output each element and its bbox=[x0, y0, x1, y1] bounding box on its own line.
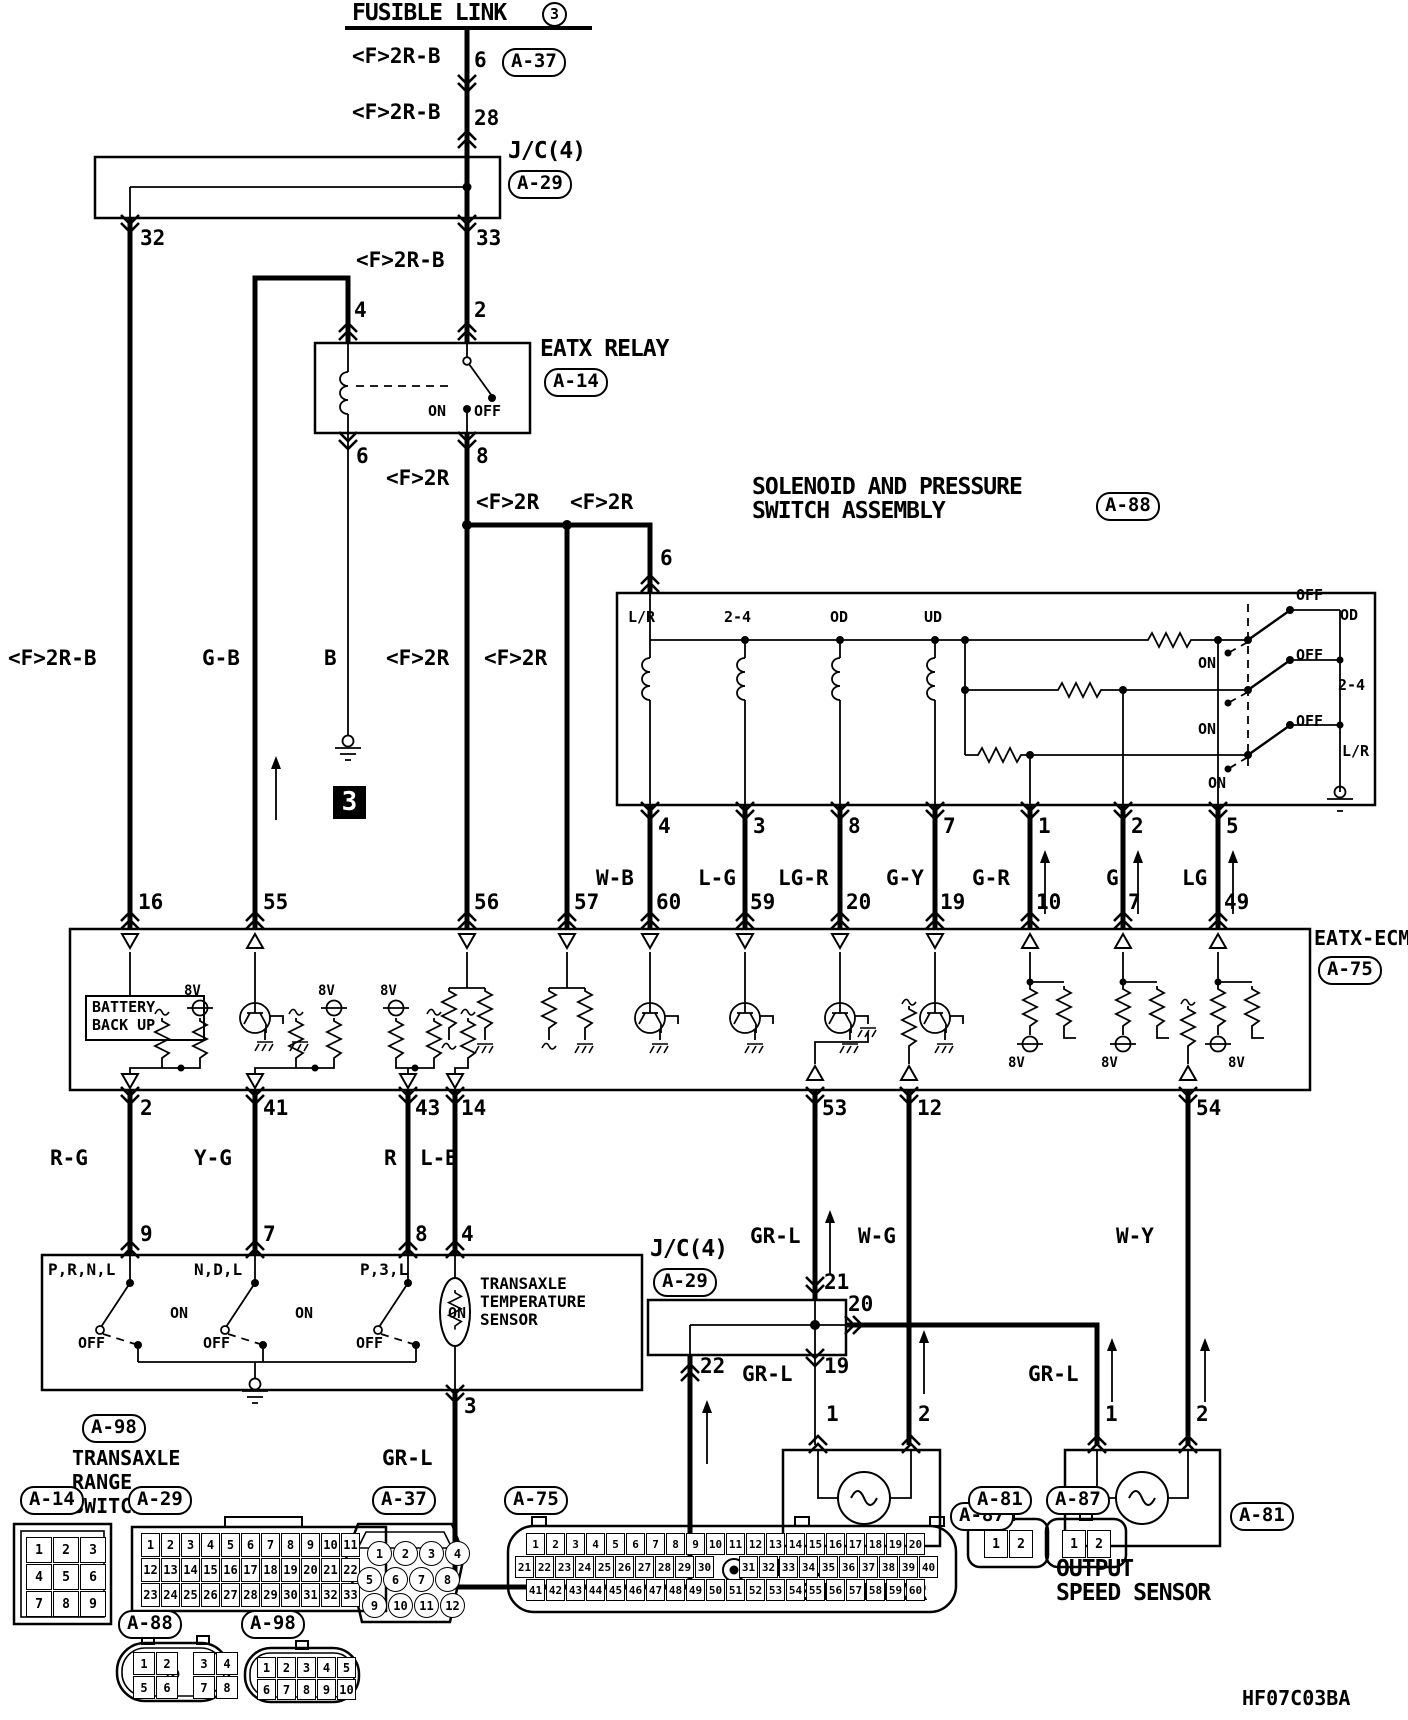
pin-cell: 44 bbox=[586, 1579, 605, 1601]
pin-label-10: 10 bbox=[1036, 892, 1061, 913]
pin-label-2: 2 bbox=[918, 1404, 931, 1425]
transistor-icon bbox=[240, 1003, 270, 1033]
pin-cell: 6 bbox=[383, 1567, 408, 1592]
pin-cell: 3 bbox=[566, 1533, 585, 1555]
connector-badge-a29: A-29 bbox=[653, 1268, 717, 1297]
fusible-link-number: 3 bbox=[542, 2, 567, 27]
8v-node-icon bbox=[1205, 1037, 1231, 1052]
pin-cell: 21 bbox=[321, 1558, 340, 1582]
temp-sensor-2: TEMPERATURE bbox=[480, 1294, 586, 1310]
circuit-ref-3: 3 bbox=[333, 786, 366, 819]
pin-label-55: 55 bbox=[263, 892, 288, 913]
pin-cell: 8 bbox=[435, 1567, 460, 1592]
temp-sensor-3: SENSOR bbox=[480, 1312, 538, 1328]
connector-badge-a14: A-14 bbox=[20, 1486, 84, 1515]
pin-cell: 3 bbox=[419, 1541, 444, 1566]
pin-cell: 9 bbox=[686, 1533, 705, 1555]
pin-cell: 2 bbox=[1087, 1530, 1111, 1558]
pin-cell: 2 bbox=[156, 1652, 178, 1675]
pin-cell: 31 bbox=[739, 1556, 758, 1578]
pin-cell: 11 bbox=[414, 1593, 439, 1618]
pin-cell: 57 bbox=[846, 1579, 865, 1601]
pin-cell: 9 bbox=[301, 1533, 320, 1557]
signal-wires bbox=[101, 187, 1340, 1498]
pin-cell: 53 bbox=[766, 1579, 785, 1601]
connector-badge-a14: A-14 bbox=[544, 368, 608, 397]
pin-cell: 21 bbox=[515, 1556, 534, 1578]
pin-label-28: 28 bbox=[474, 108, 499, 129]
wire-label-gr: G-R bbox=[972, 868, 1010, 889]
pin-cell: 46 bbox=[626, 1579, 645, 1601]
range-switch-ndl: N,D,L bbox=[194, 1262, 242, 1278]
relay-off-label: OFF bbox=[474, 404, 501, 419]
switch-on-label: ON bbox=[1208, 776, 1226, 791]
pin-label-21: 21 bbox=[824, 1272, 849, 1293]
pin-cell: 18 bbox=[261, 1558, 280, 1582]
wire-label-grl: GR-L bbox=[750, 1226, 801, 1247]
pin-cell: 2 bbox=[393, 1541, 418, 1566]
wire-label-f2r: <F>2R bbox=[476, 492, 539, 513]
resistor-icon bbox=[975, 748, 1027, 762]
pin-label-3: 3 bbox=[464, 1396, 477, 1417]
pin-label-43: 43 bbox=[415, 1098, 440, 1119]
pin-cell: 18 bbox=[866, 1533, 885, 1555]
pin-cell: 20 bbox=[301, 1558, 320, 1582]
pin-cell: 8 bbox=[281, 1533, 300, 1557]
pin-cell: 28 bbox=[241, 1583, 260, 1607]
pin-label-4: 4 bbox=[658, 816, 671, 837]
pin-cell: 32 bbox=[321, 1583, 340, 1607]
pin-row: 12 bbox=[1062, 1530, 1111, 1558]
a14-pinout-grid: 123456789 bbox=[26, 1536, 106, 1617]
pin-cell: 32 bbox=[759, 1556, 778, 1578]
pin-cell: 15 bbox=[806, 1533, 825, 1555]
pin-cell: 38 bbox=[879, 1556, 898, 1578]
pin-cell: 3 bbox=[297, 1657, 316, 1678]
pin-cell: 58 bbox=[866, 1579, 885, 1601]
pin-label-2: 2 bbox=[1196, 1404, 1209, 1425]
pin-label-12: 12 bbox=[917, 1098, 942, 1119]
connector-badge-a75: A-75 bbox=[1318, 956, 1382, 985]
wire-label-rg: R-G bbox=[50, 1148, 88, 1169]
pin-cell: 7 bbox=[646, 1533, 665, 1555]
wire-label-lb: L-B bbox=[420, 1148, 458, 1169]
solenoid-24-label: 2-4 bbox=[724, 610, 751, 625]
pin-cell: 56 bbox=[826, 1579, 845, 1601]
8v-node-icon bbox=[1110, 1037, 1136, 1052]
8v-node-icon bbox=[187, 1001, 213, 1016]
pin-cell: 24 bbox=[575, 1556, 594, 1578]
8v-node-icon bbox=[1017, 1037, 1043, 1052]
pin-label-7: 7 bbox=[1128, 892, 1141, 913]
pin-label-2: 2 bbox=[1131, 816, 1144, 837]
pin-label-1: 1 bbox=[1105, 1404, 1118, 1425]
pin-cell: 4 bbox=[586, 1533, 605, 1555]
pin-cell: 12 bbox=[141, 1558, 160, 1582]
pin-cell: 47 bbox=[646, 1579, 665, 1601]
pin-cell: 17 bbox=[241, 1558, 260, 1582]
pin-label-1: 1 bbox=[1038, 816, 1051, 837]
pin-cell: 24 bbox=[161, 1583, 180, 1607]
wire-label-f2r: <F>2R bbox=[386, 648, 449, 669]
pin-cell: 9 bbox=[317, 1679, 336, 1700]
pin-cell: 10 bbox=[388, 1593, 413, 1618]
pin-cell: 6 bbox=[80, 1564, 106, 1590]
ac-generator-icon bbox=[1116, 1472, 1168, 1524]
a87-pinout-grid: 12 bbox=[1062, 1529, 1111, 1558]
wire-label-grl: GR-L bbox=[1028, 1364, 1079, 1385]
wire-label-r: R bbox=[384, 1148, 397, 1169]
pin-cell: 54 bbox=[786, 1579, 805, 1601]
switch-off-label: OFF bbox=[78, 1336, 105, 1351]
transistor-icon bbox=[825, 1003, 855, 1033]
junction-title: J/C(4) bbox=[508, 140, 585, 163]
connector-badge-a29: A-29 bbox=[128, 1486, 192, 1515]
pin-label-19: 19 bbox=[824, 1356, 849, 1377]
pin-cell: 1 bbox=[1062, 1530, 1086, 1558]
connector-badge-a37: A-37 bbox=[372, 1486, 436, 1515]
page-title: FUSIBLE LINK bbox=[352, 2, 506, 25]
pin-cell: 48 bbox=[666, 1579, 685, 1601]
wire-label-lg: LG bbox=[1182, 868, 1207, 889]
8v-node-icon bbox=[383, 1001, 409, 1016]
pin-cell: 8 bbox=[53, 1591, 79, 1617]
pin-cell: 42 bbox=[546, 1579, 565, 1601]
wire-label-gy: G-Y bbox=[886, 868, 924, 889]
pin-cell: 49 bbox=[686, 1579, 705, 1601]
junction-dots bbox=[126, 183, 1344, 1350]
pin-cell: 1 bbox=[984, 1530, 1008, 1558]
pin-cell: 6 bbox=[156, 1676, 178, 1699]
pin-cell: 8 bbox=[666, 1533, 685, 1555]
pin-label-59: 59 bbox=[750, 892, 775, 913]
pin-row: 456 bbox=[26, 1564, 106, 1590]
pin-label-4: 4 bbox=[461, 1224, 474, 1245]
pin-row: 1234567891011121314151617181920 bbox=[526, 1533, 938, 1555]
pin-label-8: 8 bbox=[415, 1224, 428, 1245]
a98-pinout-grid: 12345678910 bbox=[257, 1656, 356, 1700]
pin-cell: 8 bbox=[216, 1676, 238, 1699]
8v-label: 8V bbox=[1228, 1056, 1245, 1070]
pin-label-54: 54 bbox=[1196, 1098, 1221, 1119]
pin-cell: 1 bbox=[526, 1533, 545, 1555]
pin-label-57: 57 bbox=[574, 892, 599, 913]
range-switch-title-1: TRANSAXLE bbox=[72, 1448, 180, 1468]
pin-cell: 7 bbox=[26, 1591, 52, 1617]
pin-cell: 14 bbox=[786, 1533, 805, 1555]
pin-row: 123 bbox=[26, 1537, 106, 1563]
pin-row: 678910 bbox=[257, 1679, 356, 1700]
pin-cell: 2 bbox=[277, 1657, 296, 1678]
pin-row: 4142434445464748495051525354555657585960 bbox=[526, 1579, 938, 1601]
pin-cell: 22 bbox=[535, 1556, 554, 1578]
range-switch-prnl: P,R,N,L bbox=[48, 1262, 115, 1278]
pin-row: 5678 bbox=[133, 1676, 238, 1699]
solenoid-title-1: SOLENOID AND PRESSURE bbox=[752, 476, 1022, 499]
pin-cell: 19 bbox=[281, 1558, 300, 1582]
switch-off-label: OFF bbox=[1296, 714, 1323, 729]
8v-label: 8V bbox=[318, 984, 335, 998]
pin-label-5: 5 bbox=[1226, 816, 1239, 837]
pin-label-9: 9 bbox=[140, 1224, 153, 1245]
pin-cell: 17 bbox=[846, 1533, 865, 1555]
pin-row: 5678 bbox=[357, 1567, 470, 1592]
wire-label-f2rb: <F>2R-B bbox=[352, 46, 441, 67]
ecm-pin-triangles bbox=[122, 934, 1226, 1088]
pin-cell: 11 bbox=[726, 1533, 745, 1555]
ecm-title: EATX-ECM bbox=[1314, 928, 1408, 948]
pin-cell: 36 bbox=[839, 1556, 858, 1578]
wire-label-f2r: <F>2R bbox=[570, 492, 633, 513]
pin-row: 1213141516171819202122 bbox=[141, 1558, 360, 1582]
wire-label-wg: W-G bbox=[858, 1226, 896, 1247]
pin-cell: 7 bbox=[261, 1533, 280, 1557]
pin-cell: 59 bbox=[886, 1579, 905, 1601]
connector-badge-a98: A-98 bbox=[241, 1610, 305, 1639]
wire-label-b: B bbox=[324, 648, 337, 669]
pin-cell: 5 bbox=[337, 1657, 356, 1678]
wire-label-f2r: <F>2R bbox=[386, 468, 449, 489]
transistor-icon bbox=[920, 1003, 950, 1033]
solenoid-ud-label: UD bbox=[924, 610, 942, 625]
pin-cell: 34 bbox=[799, 1556, 818, 1578]
pin-label-41: 41 bbox=[263, 1098, 288, 1119]
power-wires bbox=[130, 26, 1218, 1587]
pin-label-6: 6 bbox=[356, 446, 369, 467]
connector-badge-a81: A-81 bbox=[1230, 1502, 1294, 1531]
pin-cell: 52 bbox=[746, 1579, 765, 1601]
range-switch-title-2: RANGE bbox=[72, 1472, 132, 1492]
wire-label-g: G bbox=[1106, 868, 1119, 889]
pin-cell: 31 bbox=[301, 1583, 320, 1607]
pin-cell: 13 bbox=[766, 1533, 785, 1555]
battery-backup-1: BATTERY bbox=[92, 1000, 155, 1015]
wiring-diagram-page: FUSIBLE LINK 3 <F>2R-B 6 A-37 <F>2R-B 28… bbox=[0, 0, 1408, 1720]
pressure-switch-lr: L/R bbox=[1342, 744, 1369, 759]
pin-cell: 6 bbox=[626, 1533, 645, 1555]
solenoid-od-label: OD bbox=[830, 610, 848, 625]
wire-label-f2rb: <F>2R-B bbox=[8, 648, 97, 669]
pin-cell: 1 bbox=[26, 1537, 52, 1563]
pin-cell: 26 bbox=[201, 1583, 220, 1607]
pin-cell: 13 bbox=[161, 1558, 180, 1582]
a37-pinout-grid: 123456789101112 bbox=[357, 1540, 470, 1618]
connector-badge-a29: A-29 bbox=[508, 170, 572, 199]
pin-cell: 43 bbox=[566, 1579, 585, 1601]
pin-cell: 10 bbox=[321, 1533, 340, 1557]
pin-row: 1234 bbox=[367, 1541, 470, 1566]
pin-label-32: 32 bbox=[140, 228, 165, 249]
8v-label: 8V bbox=[1008, 1056, 1025, 1070]
pin-label-8: 8 bbox=[848, 816, 861, 837]
pin-cell: 4 bbox=[216, 1652, 238, 1675]
pin-label-1: 1 bbox=[826, 1404, 839, 1425]
connector-badge-a88: A-88 bbox=[1096, 492, 1160, 521]
switch-on-label: ON bbox=[1198, 722, 1216, 737]
pin-cell: 23 bbox=[141, 1583, 160, 1607]
wire-label-lgr: LG-R bbox=[778, 868, 829, 889]
pin-label-4: 4 bbox=[354, 300, 367, 321]
pin-cell: 9 bbox=[80, 1591, 106, 1617]
pin-label-3: 3 bbox=[753, 816, 766, 837]
pin-cell: 4 bbox=[317, 1657, 336, 1678]
pin-cell: 16 bbox=[221, 1558, 240, 1582]
pin-label-6: 6 bbox=[660, 548, 673, 569]
pin-cell: 26 bbox=[615, 1556, 634, 1578]
junction-title-2: J/C(4) bbox=[650, 1238, 727, 1261]
pin-cell: 6 bbox=[257, 1679, 276, 1700]
pin-label-7: 7 bbox=[943, 816, 956, 837]
switch-off-label: OFF bbox=[356, 1336, 383, 1351]
pin-cell: 30 bbox=[281, 1583, 300, 1607]
pin-cell: 5 bbox=[221, 1533, 240, 1557]
battery-backup-2: BACK UP bbox=[92, 1018, 155, 1033]
switch-on-label: ON bbox=[1198, 656, 1216, 671]
diagram-code: HF07C03BA bbox=[1242, 1688, 1350, 1708]
pin-cell: 27 bbox=[635, 1556, 654, 1578]
pin-row: 2324252627282930313233 bbox=[141, 1583, 360, 1607]
a29-pinout-grid: 1234567891011121314151617181920212223242… bbox=[141, 1532, 360, 1607]
pin-label-19: 19 bbox=[940, 892, 965, 913]
pin-cell: 33 bbox=[779, 1556, 798, 1578]
pin-cell: 27 bbox=[221, 1583, 240, 1607]
pin-cell: 37 bbox=[859, 1556, 878, 1578]
pin-label-20: 20 bbox=[848, 1294, 873, 1315]
pressure-switch-24: 2-4 bbox=[1338, 678, 1365, 693]
pin-cell: 1 bbox=[257, 1657, 276, 1678]
pin-cell: 19 bbox=[886, 1533, 905, 1555]
a75-pinout-grid: 1234567891011121314151617181920212223242… bbox=[526, 1532, 938, 1601]
pin-label-8: 8 bbox=[476, 446, 489, 467]
pin-cell: 8 bbox=[297, 1679, 316, 1700]
solenoid-coils bbox=[642, 633, 1197, 762]
pin-cell: 4 bbox=[26, 1564, 52, 1590]
range-switch-p3l: P,3,L bbox=[360, 1262, 408, 1278]
connector-badge-a87: A-87 bbox=[1046, 1486, 1110, 1515]
mechanical-links bbox=[103, 386, 1248, 1344]
pin-cell: 5 bbox=[357, 1567, 382, 1592]
temp-sensor-1: TRANSAXLE bbox=[480, 1276, 567, 1292]
pin-cell: 14 bbox=[181, 1558, 200, 1582]
wire-label-f2rb: <F>2R-B bbox=[356, 250, 445, 271]
pin-cell: 9 bbox=[362, 1593, 387, 1618]
connector-badge-a75: A-75 bbox=[504, 1486, 568, 1515]
8v-label: 8V bbox=[380, 984, 397, 998]
pin-cell: 5 bbox=[133, 1676, 155, 1699]
resistor-icon bbox=[1055, 683, 1107, 697]
pin-cell: 35 bbox=[819, 1556, 838, 1578]
pin-cell: 23 bbox=[555, 1556, 574, 1578]
pin-label-2: 2 bbox=[474, 300, 487, 321]
connector-badge-a98: A-98 bbox=[82, 1414, 146, 1443]
8v-node-icon bbox=[321, 1001, 347, 1016]
pin-cell: 3 bbox=[181, 1533, 200, 1557]
pin-cell: 5 bbox=[53, 1564, 79, 1590]
pin-cell: 2 bbox=[1009, 1530, 1033, 1558]
pin-cell: 6 bbox=[241, 1533, 260, 1557]
pin-cell: 10 bbox=[706, 1533, 725, 1555]
pin-label-20: 20 bbox=[846, 892, 871, 913]
pin-cell: 25 bbox=[181, 1583, 200, 1607]
wire-label-f2r: <F>2R bbox=[484, 648, 547, 669]
solenoid-title-2: SWITCH ASSEMBLY bbox=[752, 500, 945, 523]
pin-row: 1234 bbox=[133, 1652, 238, 1675]
connector-badge-a88: A-88 bbox=[118, 1610, 182, 1639]
pin-cell: 29 bbox=[261, 1583, 280, 1607]
wire-label-wy: W-Y bbox=[1116, 1226, 1154, 1247]
8v-label: 8V bbox=[184, 984, 201, 998]
pin-row: 1234567891011 bbox=[141, 1533, 360, 1557]
pin-cell: 1 bbox=[133, 1652, 155, 1675]
resistor-icon bbox=[1145, 633, 1197, 647]
pin-cell: 4 bbox=[201, 1533, 220, 1557]
ground-icon bbox=[335, 736, 361, 761]
pin-cell: 2 bbox=[53, 1537, 79, 1563]
wire-label-yg: Y-G bbox=[194, 1148, 232, 1169]
switch-off-label: OFF bbox=[203, 1336, 230, 1351]
wire-label-lg-dash: L-G bbox=[698, 868, 736, 889]
switch-on-label: ON bbox=[448, 1306, 466, 1321]
ac-generator-icon bbox=[838, 1472, 890, 1524]
pin-cell: 7 bbox=[409, 1567, 434, 1592]
pin-label-60: 60 bbox=[656, 892, 681, 913]
pin-label-56: 56 bbox=[474, 892, 499, 913]
output-sensor-title-1: OUTPUT bbox=[1056, 1558, 1133, 1581]
pin-cell: 3 bbox=[80, 1537, 106, 1563]
switch-off-label: OFF bbox=[1296, 588, 1323, 603]
pin-cell: 45 bbox=[606, 1579, 625, 1601]
transistor-icon bbox=[730, 1003, 760, 1033]
pin-row: 9101112 bbox=[362, 1593, 470, 1618]
wire-label-f2rb: <F>2R-B bbox=[352, 102, 441, 123]
pin-cell: 3 bbox=[193, 1652, 215, 1675]
a81-pinout-grid: 12 bbox=[984, 1529, 1033, 1558]
pin-cell: 1 bbox=[367, 1541, 392, 1566]
pin-row: 12 bbox=[984, 1530, 1033, 1558]
pin-label-49: 49 bbox=[1224, 892, 1249, 913]
pin-label-14: 14 bbox=[461, 1098, 486, 1119]
pin-cell: 12 bbox=[440, 1593, 465, 1618]
pressure-switch-od: OD bbox=[1340, 608, 1358, 623]
switch-off-label: OFF bbox=[1296, 648, 1323, 663]
pin-cell: 40 bbox=[919, 1556, 938, 1578]
connector-badge-a81: A-81 bbox=[968, 1486, 1032, 1515]
pin-cell: 15 bbox=[201, 1558, 220, 1582]
pin-cell: 2 bbox=[161, 1533, 180, 1557]
pin-cell: 29 bbox=[675, 1556, 694, 1578]
pin-cell: 5 bbox=[606, 1533, 625, 1555]
solenoid-lr-label: L/R bbox=[628, 610, 655, 625]
transistor-icon bbox=[635, 1003, 665, 1033]
wire-label-wb: W-B bbox=[596, 868, 634, 889]
schematic-lines bbox=[0, 0, 1408, 1720]
pin-label-6: 6 bbox=[474, 50, 487, 71]
pin-cell: 7 bbox=[193, 1676, 215, 1699]
switch-on-label: ON bbox=[295, 1306, 313, 1321]
pin-cell: 50 bbox=[706, 1579, 725, 1601]
pivot-circles bbox=[96, 1326, 382, 1334]
pin-row: 789 bbox=[26, 1591, 106, 1617]
relay-title: EATX RELAY bbox=[540, 338, 668, 361]
pin-cell: 60 bbox=[906, 1579, 925, 1601]
relay-on-label: ON bbox=[428, 404, 446, 419]
pin-cell: 4 bbox=[445, 1541, 470, 1566]
pin-cell: 30 bbox=[695, 1556, 714, 1578]
pin-cell: 39 bbox=[899, 1556, 918, 1578]
pin-label-7: 7 bbox=[263, 1224, 276, 1245]
8v-label: 8V bbox=[1101, 1056, 1118, 1070]
wire-label-gb: G-B bbox=[202, 648, 240, 669]
